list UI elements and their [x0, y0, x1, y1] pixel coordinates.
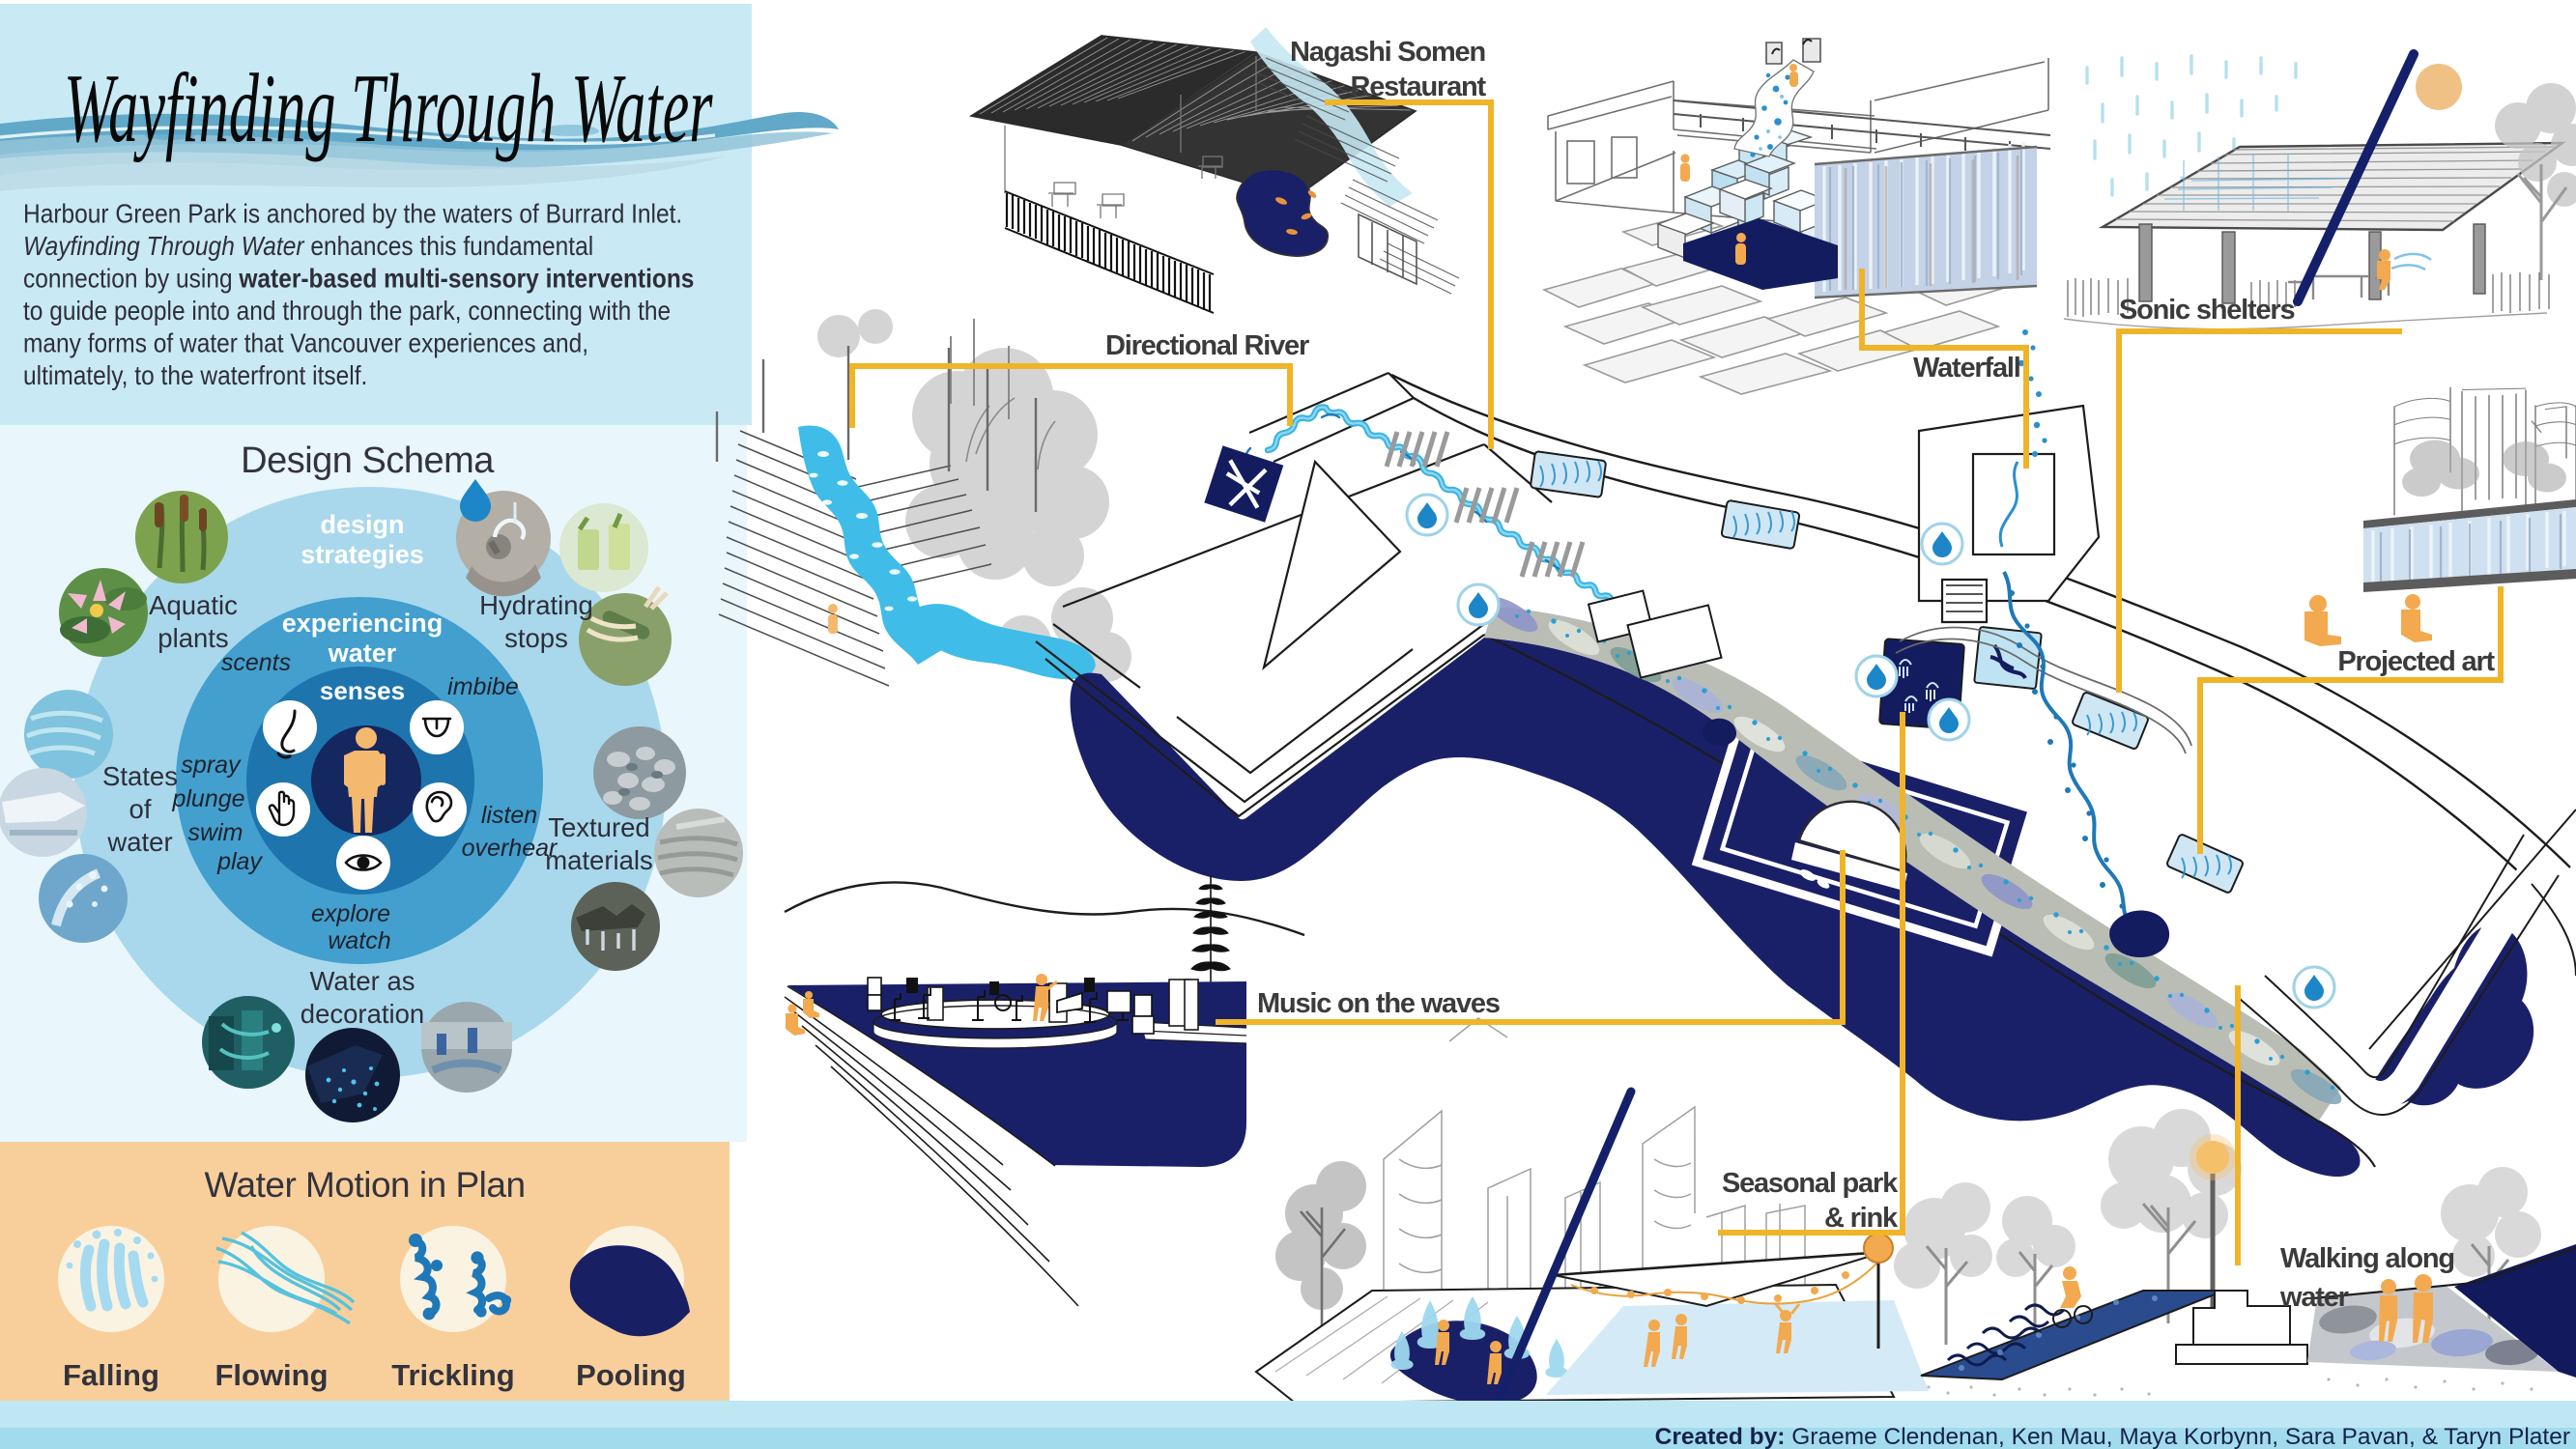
- svg-text:Projected art: Projected art: [2337, 646, 2495, 677]
- svg-text:Sonic shelters: Sonic shelters: [2119, 295, 2295, 326]
- svg-text:Music on the waves: Music on the waves: [1257, 988, 1500, 1019]
- svg-text:Walking along: Walking along: [2280, 1243, 2454, 1274]
- svg-text:Nagashi Somen: Nagashi Somen: [1290, 37, 1485, 68]
- svg-text:Restaurant: Restaurant: [1351, 71, 1487, 102]
- svg-text:Seasonal park: Seasonal park: [1722, 1168, 1899, 1199]
- svg-text:Waterfall: Waterfall: [1913, 353, 2020, 384]
- svg-text:Directional River: Directional River: [1105, 330, 1309, 361]
- svg-text:& rink: & rink: [1824, 1203, 1899, 1234]
- svg-text:Created by: Graeme Clendenan,: Created by: Graeme Clendenan, Ken Mau, M…: [1655, 1424, 2570, 1449]
- svg-text:water: water: [2279, 1282, 2349, 1313]
